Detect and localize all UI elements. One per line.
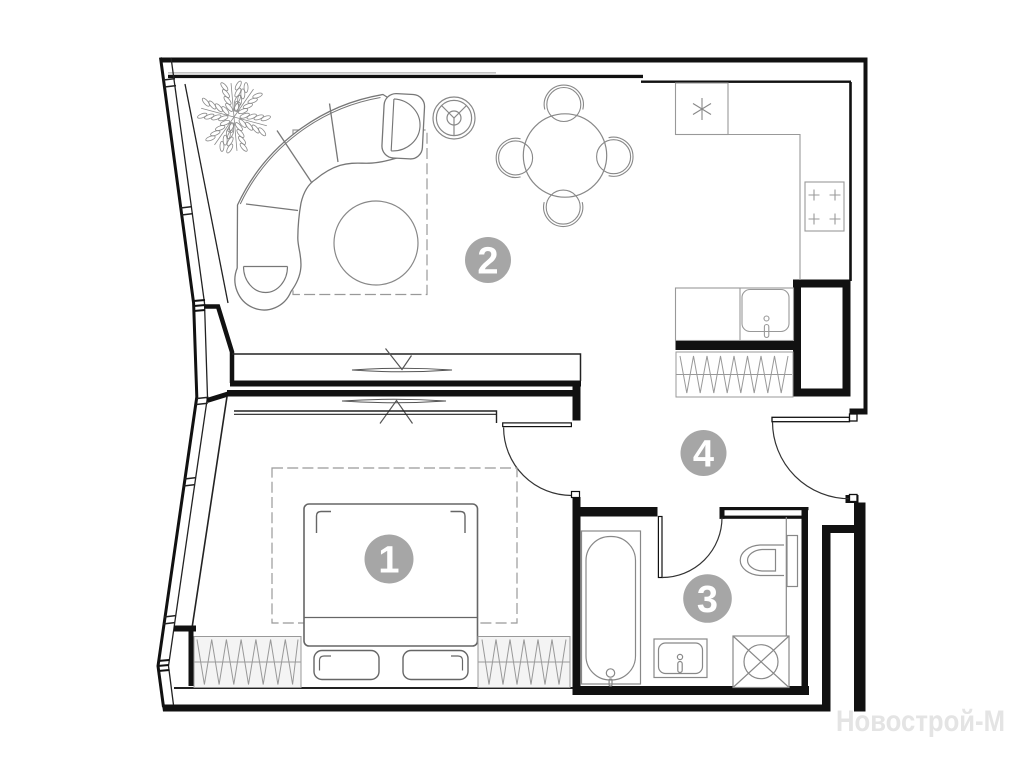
svg-text:4: 4 <box>693 434 714 476</box>
svg-text:Новострой-М: Новострой-М <box>836 705 1005 738</box>
svg-text:1: 1 <box>378 540 399 582</box>
svg-text:2: 2 <box>477 241 498 283</box>
svg-text:3: 3 <box>697 579 718 621</box>
